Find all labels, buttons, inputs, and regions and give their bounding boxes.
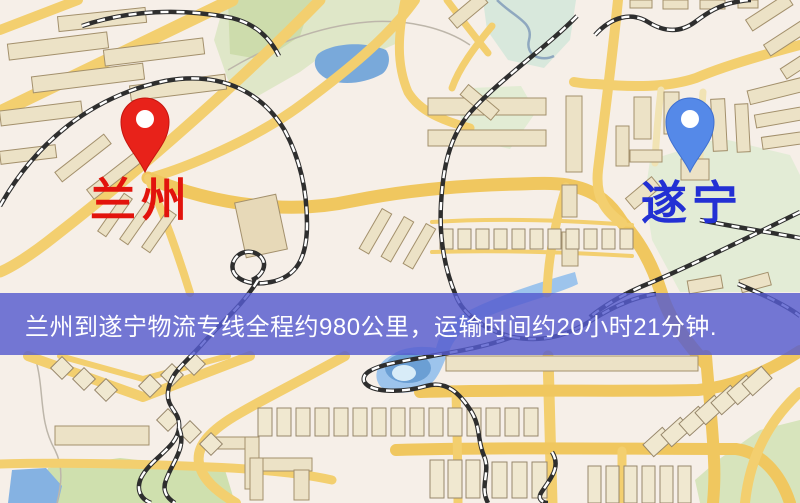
origin-city-label: 兰州 [90, 177, 192, 223]
route-info-banner: 兰州到遂宁物流专线全程约980公里，运输时间约20小时21分钟. [0, 293, 800, 355]
route-info-text: 兰州到遂宁物流专线全程约980公里，运输时间约20小时21分钟. [25, 307, 717, 342]
logistics-route-map: 兰州 遂宁 兰州到遂宁物流专线全程约980公里，运输时间约20小时21分钟. [0, 0, 800, 503]
map-image [0, 0, 800, 503]
destination-city-label: 遂宁 [641, 180, 743, 226]
